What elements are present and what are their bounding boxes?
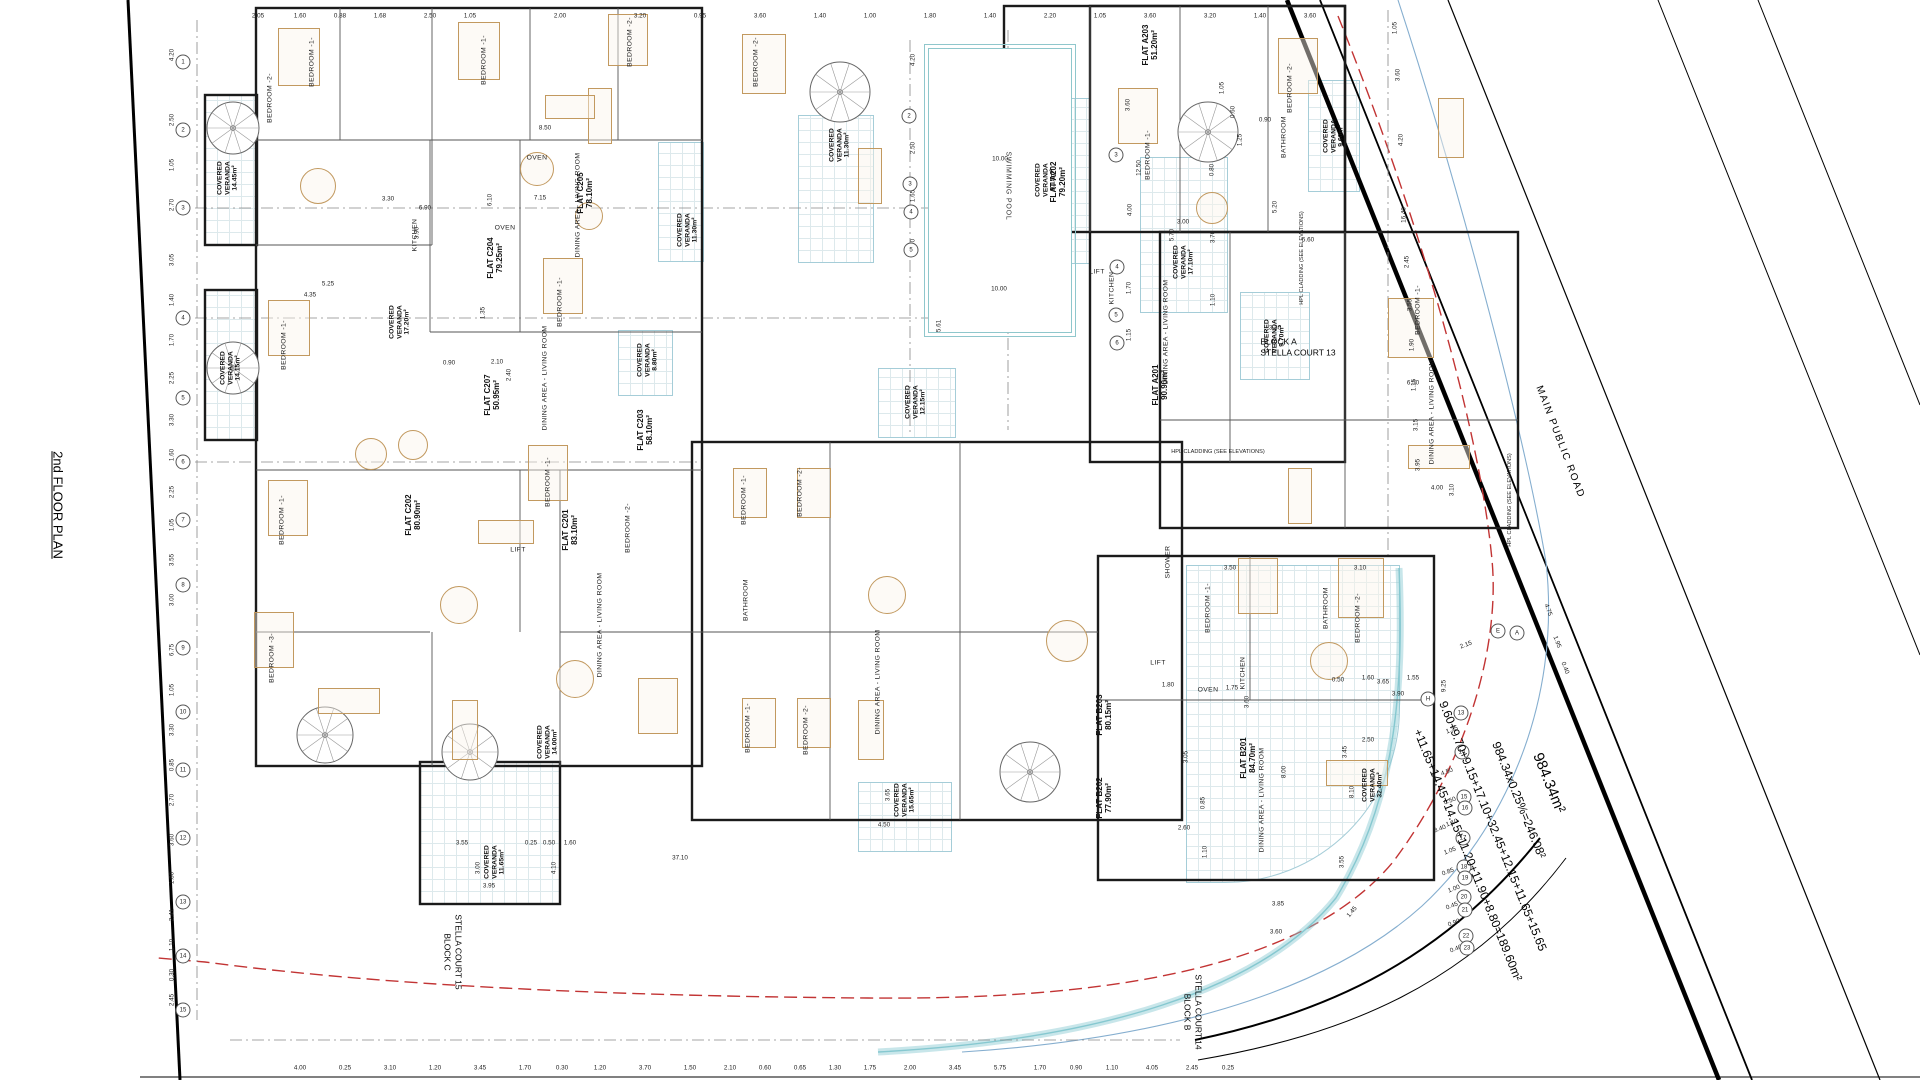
- room-label: BATHROOM: [1322, 587, 1329, 629]
- furniture-table: [440, 586, 478, 624]
- drawing-line: [325, 735, 334, 762]
- dimension: 1.00: [864, 13, 876, 20]
- drawing-line: [1206, 130, 1211, 135]
- dimension: 3.60: [1395, 69, 1402, 81]
- block-b-label: STELLA COURT 14 BLOCK B: [1181, 974, 1204, 1049]
- room-label: BATHROOM: [1280, 116, 1287, 158]
- dimension: 3.65: [1377, 679, 1389, 686]
- covered-veranda-label: COVEREDVERANDA14.45m²: [217, 161, 240, 195]
- dimension: 1.45: [1345, 905, 1358, 919]
- cladding-note: HPL CLADDING (SEE ELEVATIONS): [1507, 453, 1513, 546]
- covered-veranda-label: COVEREDVERANDA11.30m²: [677, 213, 700, 247]
- drawing-line: [323, 733, 328, 738]
- grid-bubble: 6: [176, 455, 191, 470]
- dimension: 3.70: [639, 1065, 651, 1072]
- grid-bubble: H: [1421, 692, 1436, 707]
- flat-label: FLAT C20183.10m²: [561, 509, 579, 550]
- furniture: [733, 468, 767, 518]
- grid-bubble: 16: [1458, 801, 1473, 816]
- grid-bubble: 13: [176, 895, 191, 910]
- room-label: BEDROOM -1-: [740, 475, 747, 525]
- main-public-road-label: MAIN PUBLIC ROAD: [1533, 384, 1586, 500]
- dimension: 3.60: [1244, 696, 1251, 708]
- block-b-name: BLOCK B: [1182, 994, 1192, 1031]
- dimension: 16.40: [1401, 207, 1408, 223]
- grid-bubble: 11: [176, 763, 191, 778]
- drawing-line: [1398, 0, 1546, 562]
- room-label: DINING AREA - LIVING ROOM: [596, 573, 603, 678]
- pool-dimension: 5.61: [936, 320, 943, 332]
- furniture-table: [556, 660, 594, 698]
- spiral-staircase: [810, 62, 870, 122]
- dimension: 3.90: [414, 227, 421, 239]
- dimension: 1.35: [480, 307, 487, 319]
- drawing-line: [1030, 772, 1039, 801]
- block-a-name: BLOCK A: [1260, 337, 1296, 347]
- dimension: 1.68: [374, 13, 386, 20]
- dimension: 2.10: [491, 359, 503, 366]
- block-c-label: STELLA COURT 15 BLOCK C: [441, 914, 464, 989]
- furniture: [1288, 468, 1312, 524]
- dimension: 2.25: [169, 372, 176, 384]
- room-label: BEDROOM -2-: [626, 17, 633, 67]
- room-label: BEDROOM -2-: [1354, 593, 1361, 643]
- drawing-line: [1006, 772, 1030, 790]
- dimension: 2.40: [506, 369, 513, 381]
- covered-veranda-label: COVEREDVERANDA17.10m²: [1173, 245, 1196, 279]
- dimension: 7.15: [534, 195, 546, 202]
- grid-bubble: 5: [176, 391, 191, 406]
- room-label: BEDROOM -2-: [802, 705, 809, 755]
- dimension: 1.75: [1226, 685, 1238, 692]
- dimension: 3.55: [456, 840, 468, 847]
- dimension: 4.20: [910, 54, 917, 66]
- dimension: 3.65: [885, 789, 892, 801]
- drawing-line: [840, 64, 849, 93]
- grid-bubble: 4: [1110, 260, 1125, 275]
- dimension: 1.05: [1219, 82, 1226, 94]
- room-label: SHOWER: [1164, 546, 1171, 579]
- dimension: 3.30: [1269, 325, 1281, 332]
- dimension: 1.80: [924, 13, 936, 20]
- dimension: 3.85: [1272, 901, 1284, 908]
- room-label: DINING AREA - LIVING ROOM: [1428, 360, 1435, 465]
- drawing-line: [831, 64, 840, 93]
- dimension: 0.65: [794, 1065, 806, 1072]
- grid-bubble: 4: [904, 205, 919, 220]
- dimension: 0.40: [1560, 661, 1571, 675]
- grid-bubble: 4: [176, 311, 191, 326]
- dimension: 3.05: [1183, 751, 1190, 763]
- drawing-line: [1021, 744, 1030, 773]
- dimension: 1.05: [169, 684, 176, 696]
- dimension: 12.50: [1136, 160, 1143, 176]
- dimension: 1.10: [1106, 1065, 1118, 1072]
- drawing-line: [816, 74, 840, 92]
- dimension: 2.45: [169, 994, 176, 1006]
- drawing-line: [316, 735, 325, 762]
- flat-label: FLAT C20358.10m²: [636, 409, 654, 450]
- dimension: 6.75: [169, 644, 176, 656]
- dimension: 4.20: [169, 49, 176, 61]
- dimension: 1.05: [1392, 22, 1399, 34]
- dimension: 3.45: [474, 1065, 486, 1072]
- dimension: 5.20: [1272, 201, 1279, 213]
- drawing-line: [1030, 744, 1039, 773]
- furniture: [452, 700, 478, 760]
- dimension: 1.05: [169, 159, 176, 171]
- room-label: LIFT: [1150, 659, 1166, 666]
- drawing-line: [297, 707, 353, 763]
- dimension: 3.20: [634, 13, 646, 20]
- pool-dimension: 10.00: [992, 156, 1008, 163]
- drawing-line: [810, 62, 870, 122]
- grid-bubble: 1: [176, 55, 191, 70]
- drawing-line: [1030, 754, 1054, 772]
- covered-veranda-label: COVEREDVERANDA15.65m²: [894, 783, 917, 817]
- dimension: 1.70: [519, 1065, 531, 1072]
- dimension: 3.70: [1210, 231, 1217, 243]
- pool-dimension: 10.00: [991, 286, 1007, 293]
- grid-bubble: 5: [1109, 308, 1124, 323]
- dimension: 1.55: [1407, 675, 1419, 682]
- furniture: [318, 688, 380, 714]
- dimension: 3.55: [1339, 856, 1346, 868]
- room-label: BEDROOM -2-: [624, 503, 631, 553]
- dimension: 1.10: [1202, 846, 1209, 858]
- grid-bubble: 10: [176, 705, 191, 720]
- dimension: 1.40: [814, 13, 826, 20]
- drawing-line: [302, 719, 325, 736]
- dimension: 4.20: [1398, 134, 1405, 146]
- room-label: BEDROOM -3-: [268, 633, 275, 683]
- dimension: 2.00: [904, 1065, 916, 1072]
- room-label: DINING AREA - LIVING ROOM: [541, 326, 548, 431]
- grid-bubble: 21: [1458, 903, 1473, 918]
- grid-bubble: 14: [176, 949, 191, 964]
- room-label: BEDROOM -1-: [280, 320, 287, 370]
- dimension: 1.10: [169, 939, 176, 951]
- block-a-label: BLOCK A STELLA COURT 13: [1260, 337, 1335, 360]
- dimension: 4.35: [304, 292, 316, 299]
- drawing-line: [840, 92, 864, 110]
- dimension: 3.95: [1415, 459, 1422, 471]
- drawing-line: [1028, 770, 1033, 775]
- dimension: 3.60: [1144, 13, 1156, 20]
- room-label: BEDROOM -2-: [796, 467, 803, 517]
- dimension: 2.20: [1044, 13, 1056, 20]
- room-label: DINING AREA - LIVING ROOM: [1258, 748, 1265, 853]
- dimension: 8.50: [539, 125, 551, 132]
- dimension: 3.90: [1392, 691, 1404, 698]
- dimension: 1.05: [1443, 846, 1457, 857]
- dimension: 3.05: [169, 254, 176, 266]
- dimension: 4.00: [294, 1065, 306, 1072]
- room-label: DINING AREA - LIVING ROOM: [874, 630, 881, 735]
- dimension: 2.00: [554, 13, 566, 20]
- drawing-line: [1758, 0, 1920, 405]
- dimension: 0.30: [169, 969, 176, 981]
- dimension: 3.50: [1224, 565, 1236, 572]
- dimension: 0.85: [1200, 797, 1207, 809]
- dimension: 2.50: [910, 142, 917, 154]
- dimension: 0.90: [443, 360, 455, 367]
- covered-veranda-label: COVEREDVERANDA9.60m²: [1323, 119, 1346, 153]
- flat-label: FLAT C20479.25m²: [486, 237, 504, 278]
- drawing-line: [1021, 772, 1030, 801]
- dimension: 5.25: [322, 281, 334, 288]
- block-b-court: STELLA COURT 14: [1193, 974, 1203, 1049]
- furniture: [1118, 88, 1158, 144]
- dimension: 0.85: [169, 759, 176, 771]
- dimension: 3.20: [1204, 13, 1216, 20]
- dimension: 1.75: [864, 1065, 876, 1072]
- dimension: 0.50: [1332, 677, 1344, 684]
- grid-bubble: E: [1491, 624, 1506, 639]
- drawing-line: [1030, 772, 1054, 790]
- room-label: BEDROOM -2-: [752, 37, 759, 87]
- drawing-line: [325, 719, 348, 736]
- covered-veranda-label: COVEREDVERANDA32.40m²: [1362, 768, 1385, 802]
- dimension: 1.60: [1362, 675, 1374, 682]
- dimension: 0.95: [694, 13, 706, 20]
- furniture: [638, 678, 678, 734]
- dimension: 2.41: [169, 909, 176, 921]
- dimension: 2.10: [724, 1065, 736, 1072]
- covered-veranda-label: COVEREDVERANDA14.15m²: [220, 351, 243, 385]
- dimension: 0.25: [339, 1065, 351, 1072]
- drawing-line: [1199, 104, 1208, 133]
- dimension: 1.40: [984, 13, 996, 20]
- flat-label: FLAT B20184.70m²: [1239, 737, 1257, 778]
- furniture: [1438, 98, 1464, 158]
- dimension: 2.45: [1404, 256, 1411, 268]
- spiral-staircase: [1000, 742, 1060, 802]
- grid-bubble: 2: [176, 123, 191, 138]
- dimension: 0.90: [1447, 918, 1461, 929]
- dimension: 1.90: [1409, 339, 1416, 351]
- dimension: 3.95: [483, 883, 495, 890]
- dimension: 4.50: [878, 822, 890, 829]
- drawing-line: [1208, 104, 1217, 133]
- grid-bubble: 9: [176, 641, 191, 656]
- block-a-court: STELLA COURT 13: [1260, 348, 1335, 358]
- grid-bubble: 3: [176, 201, 191, 216]
- flat-label: FLAT C20750.95m²: [483, 374, 501, 415]
- dimension: 2.70: [169, 794, 176, 806]
- grid-bubble: 15: [176, 1003, 191, 1018]
- dimension: 6.10: [487, 194, 494, 206]
- dimension: 0.25: [525, 840, 537, 847]
- drawing-line: [325, 735, 348, 752]
- dimension: 3.60: [1304, 13, 1316, 20]
- dimension: 2.15: [1459, 640, 1473, 651]
- site-area-annotation: 984.34m²: [1529, 750, 1569, 815]
- room-label: BEDROOM -1-: [1204, 583, 1211, 633]
- covered-veranda-label: COVEREDVERANDA8.80m²: [637, 343, 660, 377]
- dimension: 1.30: [829, 1065, 841, 1072]
- dimension: 3.60: [754, 13, 766, 20]
- drawing-line: [816, 92, 840, 110]
- flat-label: FLAT B20277.90m²: [1095, 777, 1113, 818]
- dimension: 1.15: [1126, 329, 1133, 341]
- dimension: 1.25: [1237, 134, 1244, 146]
- furniture: [1238, 558, 1278, 614]
- block-c-name: BLOCK C: [442, 933, 452, 970]
- dimension: 3.30: [169, 414, 176, 426]
- grid-bubble: 3: [903, 177, 918, 192]
- grid-bubble: 7: [176, 513, 191, 528]
- dimension: 5.75: [994, 1065, 1006, 1072]
- dimension: 3.55: [169, 554, 176, 566]
- dimension: 37.10: [672, 855, 688, 862]
- dimension: 9.25: [1441, 680, 1448, 692]
- room-label: BEDROOM -1-: [278, 495, 285, 545]
- dimension: 3.30: [382, 196, 394, 203]
- room-label: BEDROOM -2-: [266, 73, 273, 123]
- covered-veranda-label: COVEREDVERANDA9.15m²: [1035, 163, 1058, 197]
- drawing-line: [840, 74, 864, 92]
- room-label: BEDROOM -1-: [308, 37, 315, 87]
- dimension: 2.05: [252, 13, 264, 20]
- dimension: 1.10: [1210, 294, 1217, 306]
- room-label: LIFT: [510, 546, 526, 553]
- grid-bubble: 6: [1110, 336, 1125, 351]
- dimension: 3.00: [475, 862, 482, 874]
- dimension: 3.60: [1125, 99, 1132, 111]
- cladding-note: HPL CLADDING (SEE ELEVATIONS): [1171, 449, 1264, 455]
- dimension: 0.85: [1441, 867, 1455, 878]
- dimension: 1.65: [910, 190, 917, 202]
- dimension: 1.70: [1034, 1065, 1046, 1072]
- covered-veranda-label: COVEREDVERANDA11.30m²: [829, 128, 852, 162]
- grid-bubble: A: [1510, 626, 1525, 641]
- drawing-line: [1658, 0, 1920, 655]
- dimension: 3.10: [1354, 565, 1366, 572]
- dimension: 0.88: [334, 13, 346, 20]
- grid-bubble: 8: [176, 578, 191, 593]
- dimension: 3.60: [1270, 929, 1282, 936]
- dimension: 3.15: [1413, 419, 1420, 431]
- drawing-line: [1208, 132, 1232, 150]
- dimension: 2.70: [169, 199, 176, 211]
- drawing-line: [1000, 742, 1060, 802]
- dimension: 2.50: [1362, 737, 1374, 744]
- dimension: 3.55: [1407, 299, 1414, 311]
- room-label: KITCHEN: [1108, 272, 1115, 305]
- dimension: 3.00: [1177, 219, 1189, 226]
- furniture-table: [300, 168, 336, 204]
- drawing-line: [1006, 754, 1030, 772]
- dimension: 2.45: [1186, 1065, 1198, 1072]
- furniture: [858, 148, 882, 204]
- dimension: 3.10: [1449, 484, 1456, 496]
- room-label: BEDROOM -2-: [1286, 63, 1293, 113]
- dimension: 0.80: [1209, 164, 1216, 176]
- dimension: 5.70: [1169, 229, 1176, 241]
- furniture: [268, 300, 310, 356]
- room-label: BEDROOM -1-: [480, 35, 487, 85]
- dimension: 3.10: [384, 1065, 396, 1072]
- dimension: 4.00: [1431, 485, 1443, 492]
- dimension: 2.50: [169, 114, 176, 126]
- dimension: 1.05: [169, 519, 176, 531]
- furniture: [458, 22, 500, 80]
- dimension: 2.50: [424, 13, 436, 20]
- floor-plan: SWIMMING POOL 10.00 10.00 5.61 FLAT C205…: [0, 0, 1920, 1080]
- dimension: 0.50: [543, 840, 555, 847]
- dimension: 4.00: [1127, 204, 1134, 216]
- dimension: 1.40: [1254, 13, 1266, 20]
- drawing-line: [302, 735, 325, 752]
- furniture: [742, 34, 786, 94]
- flat-label: FLAT C20280.90m²: [404, 494, 422, 535]
- room-label: BEDROOM -1-: [544, 457, 551, 507]
- grid-bubble: 23: [1460, 941, 1475, 956]
- grid-bubble: 12: [176, 831, 191, 846]
- furniture-table: [1196, 192, 1228, 224]
- grid-bubble: 2: [902, 109, 917, 124]
- dimension: 2.60: [1178, 825, 1190, 832]
- dimension: 0.90: [1259, 117, 1271, 124]
- furniture-table: [1046, 620, 1088, 662]
- room-label: KITCHEN: [1239, 657, 1246, 690]
- cladding-note: HPL CLADDING (SEE ELEVATIONS): [1299, 211, 1305, 304]
- grid-bubble: 5: [904, 243, 919, 258]
- flat-label: FLAT A20351.20m²: [1141, 25, 1159, 66]
- block-c-court: STELLA COURT 15: [453, 914, 463, 989]
- dimension: 1.70: [1126, 282, 1133, 294]
- furniture-table: [1310, 642, 1348, 680]
- dimension: 3.30: [169, 724, 176, 736]
- room-label: OVEN: [495, 224, 516, 231]
- dimension: 0.60: [1230, 106, 1237, 118]
- dimension: 1.20: [594, 1065, 606, 1072]
- dimension: 1.60: [169, 449, 176, 461]
- room-label: BEDROOM -1-: [1414, 285, 1421, 335]
- dimension: 3.45: [1342, 746, 1349, 758]
- dimension: 1.60: [294, 13, 306, 20]
- furniture: [268, 480, 308, 536]
- dimension: 1.80: [1162, 682, 1174, 689]
- drawing-line: [838, 90, 843, 95]
- drawing-line: [1184, 132, 1208, 150]
- dimension: 0.30: [556, 1065, 568, 1072]
- dimension: 1.05: [1094, 13, 1106, 20]
- room-label: OVEN: [527, 154, 548, 161]
- dimension: 6.90: [419, 205, 431, 212]
- dimension: 4.10: [551, 862, 558, 874]
- sheet-title: 2nd FLOOR PLAN: [51, 451, 66, 559]
- covered-veranda-label: COVEREDVERANDA17.20m²: [389, 305, 412, 339]
- dimension: 6.50: [1407, 380, 1419, 387]
- dimension: 0.90: [1070, 1065, 1082, 1072]
- dimension: 1.60: [564, 840, 576, 847]
- dimension: 1.20: [429, 1065, 441, 1072]
- room-label: LIFT: [1089, 268, 1105, 275]
- room-label: BEDROOM -1-: [744, 703, 751, 753]
- room-label: OVEN: [1198, 686, 1219, 693]
- dimension: 4.05: [1146, 1065, 1158, 1072]
- dimension: 8.40: [1433, 824, 1447, 835]
- covered-veranda-label: COVEREDVERANDA12.15m²: [905, 385, 928, 419]
- dimension: 3.00: [169, 594, 176, 606]
- dimension: 1.50: [684, 1065, 696, 1072]
- dimension: 1.80: [169, 872, 176, 884]
- dimension: 1.95: [1552, 635, 1563, 649]
- covered-veranda-label: COVEREDVERANDA14.00m²: [537, 725, 560, 759]
- furniture-table: [355, 438, 387, 470]
